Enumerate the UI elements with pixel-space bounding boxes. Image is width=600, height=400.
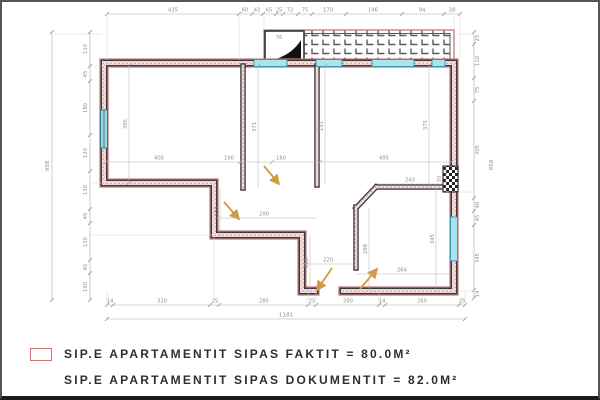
- dim-label: 155: [214, 206, 220, 216]
- dim-label: 200: [343, 299, 353, 305]
- dim-label: 75: [475, 87, 481, 94]
- dim-label: 14: [107, 299, 114, 305]
- dim-label: 220: [323, 258, 333, 264]
- exterior-walls: [104, 63, 454, 291]
- dim-label: 146: [368, 8, 378, 14]
- dim-label: 285: [259, 299, 269, 305]
- dim-interior: 405 100 160 495 365 371 191 375 70 243 1…: [104, 64, 453, 291]
- legend-text-faktit: SIP.E APARTAMENTIT SIPAS FAKTIT = 80.0M²: [64, 347, 412, 361]
- dim-label: 72: [287, 8, 294, 14]
- dim-label: 75: [302, 8, 309, 14]
- dim-label: 160: [276, 156, 286, 162]
- dim-label: 25: [309, 299, 316, 305]
- dim-top: 435 60 43 65 25 72 75 170 146 94 28: [105, 8, 462, 17]
- legend-row-faktit: SIP.E APARTAMENTIT SIPAS FAKTIT = 80.0M²: [30, 344, 590, 364]
- dim-total-left: 958: [45, 160, 51, 171]
- dim-label: 70: [437, 176, 443, 183]
- dim-label: 28: [449, 8, 456, 14]
- dim-label: 371: [252, 122, 258, 132]
- window-top-4: [432, 60, 445, 67]
- dim-label: 60: [242, 8, 249, 14]
- floor-plan-canvas: 76 435 60 43 65 25: [2, 2, 598, 340]
- dim-label: 43: [254, 8, 261, 14]
- dim-bottom: 14 310 25 285 25 200 14 260 25 1181: [105, 299, 467, 322]
- dim-label: 130: [83, 185, 89, 195]
- dim-label: 25: [276, 8, 283, 14]
- legend-swatch-spacer: [30, 374, 52, 387]
- dim-label: 120: [83, 148, 89, 158]
- dim-label: 298: [363, 244, 369, 254]
- dim-label: 45: [475, 215, 481, 222]
- dim-label: 375: [423, 120, 429, 130]
- dim-label: 180: [83, 103, 89, 113]
- dim-label: 345: [475, 253, 481, 263]
- dim-label: 45: [83, 213, 89, 220]
- door-arrow-2: [264, 166, 279, 184]
- dim-left: 110 45 180 120 130 45 130 45 190 958: [45, 30, 92, 302]
- dim-label: 365: [123, 119, 129, 129]
- door-arrow-1: [224, 202, 239, 219]
- legend-text-dokumentit: SIP.E APARTAMENTIT SIPAS DOKUMENTIT = 82…: [64, 373, 459, 387]
- dim-label: 130: [83, 237, 89, 247]
- dim-label: 345: [430, 234, 436, 244]
- stair-room: 76: [265, 31, 304, 63]
- dim-total-right: 858: [489, 159, 495, 170]
- drawing-sheet: 76 435 60 43 65 25: [0, 0, 600, 400]
- dim-label: 45: [83, 71, 89, 78]
- dim-label: 435: [168, 8, 178, 14]
- dim-label: 200: [259, 212, 269, 218]
- dim-right: 25 110 75 305 40 45 345 14 858: [472, 30, 495, 300]
- dim-label: 264: [397, 268, 408, 274]
- door-arrow-4: [360, 269, 377, 289]
- dim-label: 14: [379, 299, 386, 305]
- dim-label: 170: [323, 8, 333, 14]
- dim-label: 110: [83, 44, 89, 54]
- window-top-2: [316, 60, 342, 67]
- area-swatch: [30, 348, 52, 361]
- dim-label: 76: [276, 35, 283, 41]
- dim-label: 495: [379, 156, 389, 162]
- dim-label: 25: [212, 299, 219, 305]
- door-arrow-3: [317, 268, 332, 290]
- dim-label: 243: [405, 178, 415, 184]
- window-right: [451, 217, 458, 261]
- dim-label: 305: [475, 145, 481, 155]
- dim-label: 25: [475, 35, 481, 42]
- dim-label: 40: [475, 202, 481, 209]
- dim-label: 25: [459, 299, 466, 305]
- dim-label: 191: [319, 121, 325, 131]
- shaft-column: [443, 166, 458, 192]
- dim-label: 260: [417, 299, 427, 305]
- dim-total-bottom: 1181: [279, 313, 294, 319]
- dim-label: 110: [475, 56, 481, 66]
- dim-label: 65: [266, 8, 273, 14]
- dim-label: 45: [83, 264, 89, 271]
- window-top-3: [372, 60, 414, 67]
- legend-row-dokumentit: SIP.E APARTAMENTIT SIPAS DOKUMENTIT = 82…: [30, 370, 590, 390]
- dim-label: 213: [304, 258, 310, 268]
- dim-label: 310: [157, 299, 167, 305]
- dim-label: 94: [419, 8, 426, 14]
- dim-label: 100: [224, 156, 234, 162]
- dim-label: 14: [475, 290, 481, 297]
- legend: SIP.E APARTAMENTIT SIPAS FAKTIT = 80.0M²…: [30, 344, 590, 396]
- dim-label: 190: [83, 282, 89, 292]
- dim-label: 405: [154, 156, 164, 162]
